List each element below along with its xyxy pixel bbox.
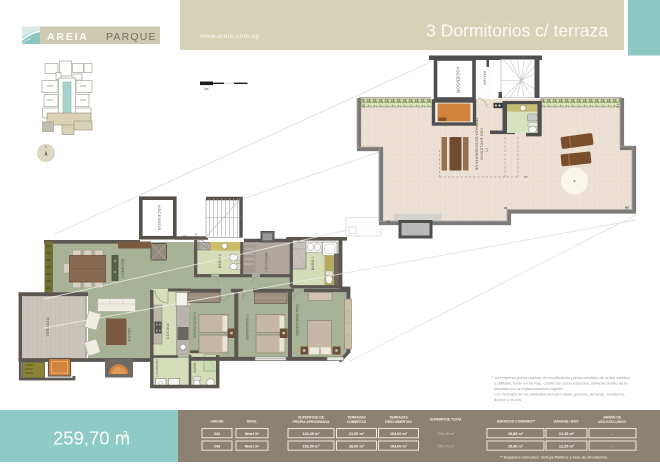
svg-text:www.areia.com.uy: www.areia.com.uy <box>199 33 260 40</box>
svg-text:admitido por la reglamentación: admitido por la reglamentación vigente. <box>494 386 564 391</box>
svg-text:4.5: 4.5 <box>616 104 620 109</box>
svg-text:256,40 m²: 256,40 m² <box>437 432 455 436</box>
svg-text:BAÑO 2: BAÑO 2 <box>217 254 222 268</box>
svg-text:152,00 m²: 152,00 m² <box>302 444 320 448</box>
svg-text:UNIDAD: UNIDAD <box>210 420 224 424</box>
svg-text:2: 2 <box>123 430 128 441</box>
svg-text:259,70 m: 259,70 m <box>53 428 130 449</box>
svg-text:DORMITORIO PPAL.: DORMITORIO PPAL. <box>296 302 300 336</box>
svg-text:Nivel 3+: Nivel 3+ <box>245 432 260 436</box>
svg-text:DESCUBIERTAS: DESCUBIERTAS <box>385 420 412 424</box>
svg-text:GARAGE / BOX: GARAGE / BOX <box>553 420 579 424</box>
svg-text:DORMITORIO 2: DORMITORIO 2 <box>246 314 250 340</box>
svg-text:15,88 m²: 15,88 m² <box>508 432 524 436</box>
svg-text:TERRAZAS: TERRAZAS <box>389 416 408 420</box>
svg-text:TERRAZAS: TERRAZAS <box>347 416 366 420</box>
svg-text:JARDÍN DE: JARDÍN DE <box>603 415 622 420</box>
svg-text:3 Dormitorios c/ terraza: 3 Dormitorios c/ terraza <box>426 21 608 41</box>
svg-text:HALL: HALL <box>182 234 189 238</box>
svg-text:VESTIDOR: VESTIDOR <box>265 252 269 272</box>
svg-text:259,70 m²: 259,70 m² <box>437 444 455 448</box>
svg-text:ACC: ACC <box>194 233 197 238</box>
svg-text:PALIER: PALIER <box>483 71 487 85</box>
svg-text:m²: m² <box>524 175 528 179</box>
svg-text:AREIA: AREIA <box>47 31 89 43</box>
svg-text:104,00 m²: 104,00 m² <box>390 444 408 448</box>
svg-text:N2: N2 <box>625 206 629 210</box>
svg-text:SUPERFICIE TOTAL: SUPERFICIE TOTAL <box>430 418 462 422</box>
svg-text:COCINA: COCINA <box>166 323 170 340</box>
svg-text:LAVADERO: LAVADERO <box>155 359 159 377</box>
svg-text:o utilitario, tanto en formas,: o utilitario, tanto en formas, contornos… <box>494 381 628 386</box>
svg-text:BAÑO 1: BAÑO 1 <box>310 256 315 270</box>
svg-text:ESPACIOS COMUNES**: ESPACIOS COMUNES** <box>497 420 536 424</box>
svg-text:4.5: 4.5 <box>362 104 366 109</box>
svg-text:241: 241 <box>214 432 220 436</box>
svg-text:CUBIERTAS: CUBIERTAS <box>347 420 367 424</box>
svg-text:ductos y muros.: ductos y muros. <box>494 397 522 402</box>
svg-text:DORMITORIO 3: DORMITORIO 3 <box>193 312 197 338</box>
svg-text:Los metrajes de las unidades i: Los metrajes de las unidades incluyen lo… <box>494 392 625 397</box>
svg-text:243: 243 <box>214 444 220 448</box>
svg-text:104,00 m²: 104,00 m² <box>390 432 408 436</box>
svg-text:1m: 1m <box>204 87 209 91</box>
svg-text:NIVEL: NIVEL <box>247 420 257 424</box>
svg-text:132,40 m²: 132,40 m² <box>302 432 320 436</box>
svg-text:02: 02 <box>504 206 508 210</box>
svg-text:28,00 m²: 28,00 m² <box>349 444 365 448</box>
svg-text:* La empresa podrá realizar de: * La empresa podrá realizar de modificac… <box>492 375 631 380</box>
svg-text:21,00 m²: 21,00 m² <box>349 432 365 436</box>
svg-text:Nivel 3+: Nivel 3+ <box>245 444 260 448</box>
svg-text:12,35 m²: 12,35 m² <box>559 432 575 436</box>
svg-text:** Espacios comunes: incluye P: ** Espacios comunes: incluye Palliers y … <box>500 456 608 460</box>
svg-text:N2: N2 <box>387 220 391 224</box>
svg-text:12,25 m²: 12,25 m² <box>559 444 575 448</box>
svg-text:COMEDOR: COMEDOR <box>121 258 125 278</box>
svg-text:USO EXCLUSIVO: USO EXCLUSIVO <box>598 420 626 424</box>
svg-text:USO EXCLUSIVO: USO EXCLUSIVO <box>480 128 484 160</box>
svg-text:PROPIA APROXIMADA: PROPIA APROXIMADA <box>293 420 330 424</box>
svg-text:15,90 m²: 15,90 m² <box>508 444 524 448</box>
svg-text:TERRAZA DESCUBIERTA DE: TERRAZA DESCUBIERTA DE <box>475 118 479 171</box>
svg-text:ESTAR: ESTAR <box>128 328 132 342</box>
svg-text:ASCENSOR: ASCENSOR <box>157 205 162 231</box>
svg-text:SUPERFICIE DE: SUPERFICIE DE <box>298 416 325 420</box>
svg-text:ASCENSOR: ASCENSOR <box>456 67 461 94</box>
svg-text:PARQUE: PARQUE <box>106 31 157 43</box>
svg-text:(*): (*) <box>485 148 489 152</box>
svg-text:BAÑO 3: BAÑO 3 <box>192 360 197 373</box>
